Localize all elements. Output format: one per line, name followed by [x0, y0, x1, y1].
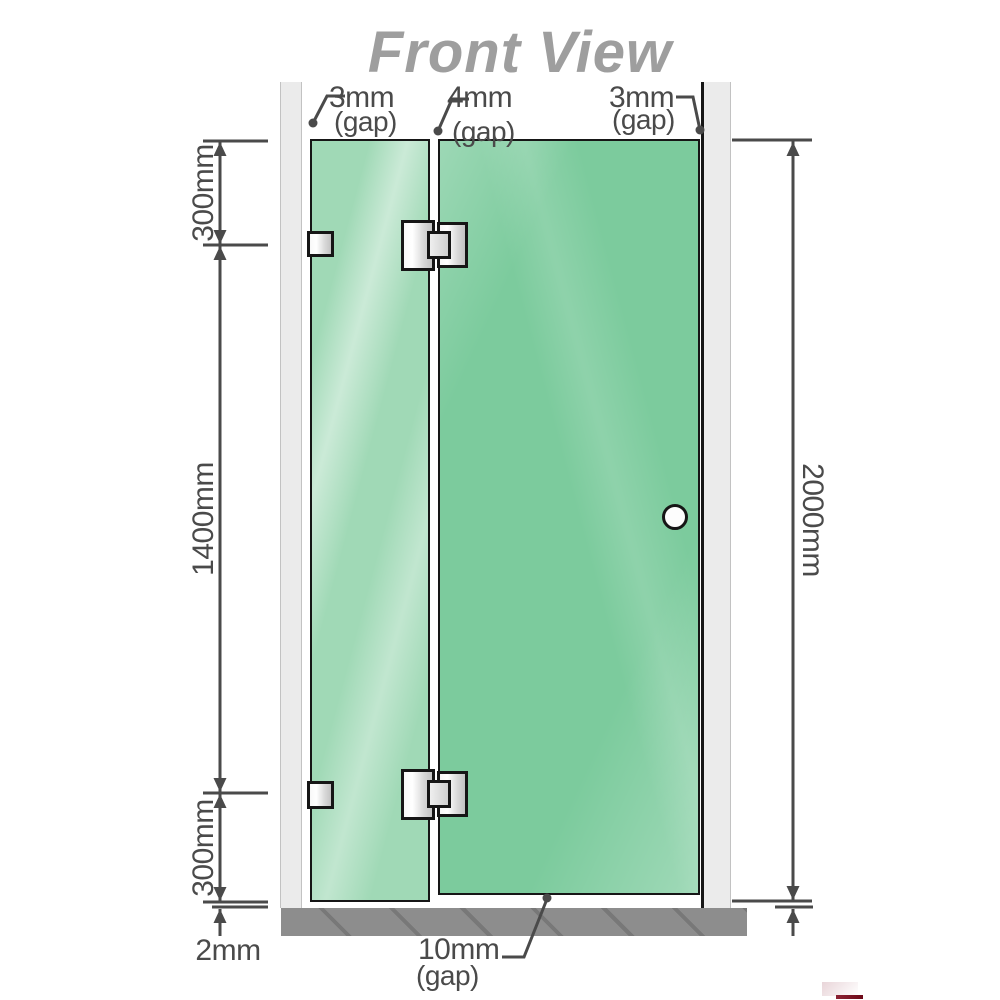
gap-label-mid-value: 4mm — [447, 83, 512, 113]
top-hinge-tongue — [427, 231, 451, 259]
left-wall-channel — [280, 82, 302, 908]
gap-label-bottom-note: (gap) — [416, 962, 479, 990]
dim-label-floor-gap-2mm: 2mm — [195, 936, 260, 966]
bottom-hinge-tongue — [427, 780, 451, 808]
front-view-diagram: Front View — [0, 0, 1000, 1000]
dim-label-upper-300: 300mm — [189, 144, 219, 242]
bottom-wall-bracket — [307, 781, 334, 809]
gap-label-left-note: (gap) — [334, 108, 397, 136]
right-wall-channel — [701, 82, 731, 908]
floor-base — [281, 908, 747, 936]
dim-label-lower-300: 300mm — [189, 799, 219, 897]
dim-label-total-2000: 2000mm — [797, 463, 827, 577]
dim-label-middle-1400: 1400mm — [189, 462, 219, 576]
diagram-title: Front View — [300, 24, 740, 82]
cropped-logo-haze — [822, 982, 858, 996]
gap-label-mid-note: (gap) — [452, 118, 515, 146]
top-wall-bracket — [307, 231, 334, 257]
door-glass-panel — [438, 139, 700, 895]
door-handle-knob — [662, 504, 688, 530]
gap-label-right-note: (gap) — [612, 106, 675, 134]
cropped-logo-fragment — [836, 995, 863, 999]
